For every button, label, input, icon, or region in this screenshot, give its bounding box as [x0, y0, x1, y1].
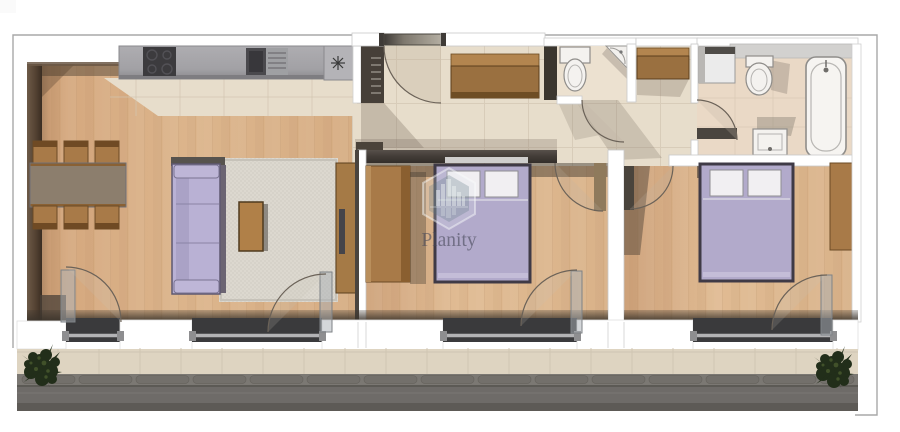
svg-text:Planity: Planity [421, 230, 477, 251]
